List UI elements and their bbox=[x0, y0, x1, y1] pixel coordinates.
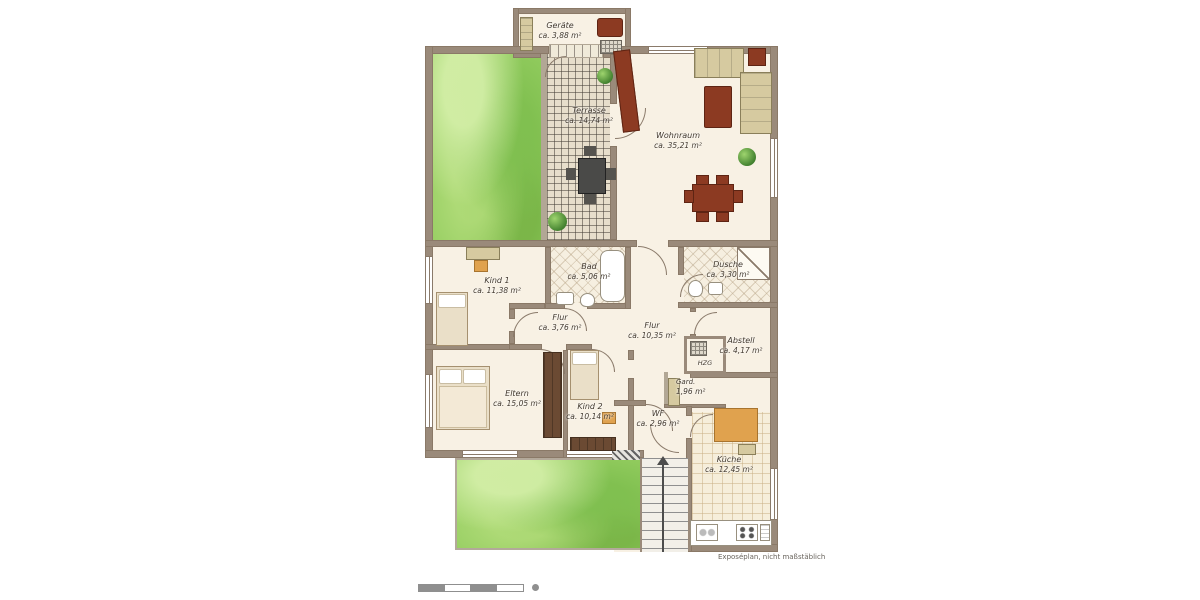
room-name: Flur bbox=[527, 313, 593, 323]
room-name: Geräte bbox=[528, 21, 592, 31]
dining-chair bbox=[716, 212, 729, 222]
terrace-chair bbox=[584, 194, 596, 204]
room-label-gard: Gard. 1,96 m² bbox=[676, 378, 720, 397]
wall bbox=[686, 406, 692, 416]
toilet bbox=[688, 280, 703, 297]
room-label-terrasse: Terrasse ca. 14,74 m² bbox=[553, 106, 625, 126]
scale-bar bbox=[418, 583, 544, 593]
window bbox=[462, 450, 518, 458]
entry-step-hatch bbox=[612, 450, 640, 460]
plant-icon bbox=[738, 148, 756, 166]
blanket bbox=[439, 386, 487, 428]
room-name: Kind 2 bbox=[557, 402, 623, 412]
terrace-table bbox=[578, 158, 606, 194]
room-name: Bad bbox=[558, 262, 620, 272]
sink-unit bbox=[696, 524, 718, 541]
pillow bbox=[463, 369, 486, 384]
room-name: Wohnraum bbox=[640, 131, 716, 141]
terrace-chair bbox=[584, 146, 596, 156]
stairs bbox=[640, 458, 688, 552]
sink bbox=[708, 282, 723, 295]
room-area: ca. 12,45 m² bbox=[695, 465, 763, 475]
terrace-chair bbox=[566, 168, 576, 180]
room-name: Abstell bbox=[706, 336, 776, 346]
room-area: 1,96 m² bbox=[676, 387, 720, 397]
room-label-wohnraum: Wohnraum ca. 35,21 m² bbox=[640, 131, 716, 151]
room-label-bad: Bad ca. 5,06 m² bbox=[558, 262, 620, 282]
room-area: ca. 4,17 m² bbox=[706, 346, 776, 356]
room-label-flur-2: Flur ca. 10,35 m² bbox=[621, 321, 683, 341]
window bbox=[425, 374, 433, 428]
room-name: Kind 1 bbox=[462, 276, 532, 286]
room-area: ca. 15,05 m² bbox=[482, 399, 552, 409]
terrace-chair bbox=[606, 168, 616, 180]
window bbox=[425, 256, 433, 304]
scale-segment bbox=[444, 584, 472, 592]
rug bbox=[704, 86, 732, 128]
wall bbox=[628, 350, 634, 360]
sink bbox=[556, 292, 574, 305]
room-area: ca. 5,06 m² bbox=[558, 272, 620, 282]
room-label-hzg: HZG bbox=[687, 359, 723, 367]
room-name: Eltern bbox=[482, 389, 552, 399]
dining-chair bbox=[696, 175, 709, 185]
room-area: ca. 3,76 m² bbox=[527, 323, 593, 333]
room-area: ca. 10,35 m² bbox=[621, 331, 683, 341]
room-label-dusche: Dusche ca. 3,30 m² bbox=[697, 260, 759, 280]
stairs-direction-arrow bbox=[657, 456, 669, 465]
room-label-abstell: Abstell ca. 4,17 m² bbox=[706, 336, 776, 356]
scale-end-marker bbox=[532, 584, 539, 591]
scale-segment bbox=[470, 584, 498, 592]
garden-top bbox=[433, 54, 541, 240]
stairs-rail bbox=[662, 462, 664, 552]
chair bbox=[474, 260, 488, 272]
window bbox=[770, 468, 778, 520]
desk bbox=[466, 247, 500, 260]
room-label-wf: WF ca. 2,96 m² bbox=[631, 409, 685, 429]
window bbox=[566, 450, 614, 458]
room-label-flur-1: Flur ca. 3,76 m² bbox=[527, 313, 593, 333]
wall bbox=[545, 247, 551, 305]
wall bbox=[690, 308, 696, 312]
floor-plan: Geräte ca. 3,88 m² Terrasse ca. 14,74 m²… bbox=[0, 0, 1200, 600]
kitchen-table bbox=[714, 408, 758, 442]
dining-chair bbox=[696, 212, 709, 222]
wall bbox=[668, 240, 778, 247]
room-name: Terrasse bbox=[553, 106, 625, 116]
room-area: ca. 14,74 m² bbox=[553, 116, 625, 126]
room-area: ca. 3,30 m² bbox=[697, 270, 759, 280]
room-area: ca. 35,21 m² bbox=[640, 141, 716, 151]
wall bbox=[625, 247, 631, 309]
room-area: ca. 11,38 m² bbox=[462, 286, 532, 296]
boiler-icon bbox=[690, 341, 707, 356]
room-label-geraete: Geräte ca. 3,88 m² bbox=[528, 21, 592, 41]
garden-bottom bbox=[455, 458, 642, 550]
plant-icon bbox=[597, 68, 613, 84]
room-area: ca. 2,96 m² bbox=[631, 419, 685, 429]
scale-segment bbox=[418, 584, 446, 592]
room-area: ca. 3,88 m² bbox=[528, 31, 592, 41]
pillow bbox=[572, 352, 597, 365]
sofa bbox=[740, 72, 772, 134]
stove bbox=[736, 524, 758, 541]
room-name: WF bbox=[631, 409, 685, 419]
wardrobe bbox=[570, 437, 616, 451]
sofa bbox=[694, 48, 744, 78]
room-name: Dusche bbox=[697, 260, 759, 270]
room-label-kind2: Kind 2 ca. 10,14 m² bbox=[557, 402, 623, 422]
footer-note: Exposéplan, nicht maßstäblich bbox=[718, 553, 825, 561]
scale-segment bbox=[496, 584, 524, 592]
room-name: Flur bbox=[621, 321, 683, 331]
side-table bbox=[748, 48, 766, 66]
plant-icon bbox=[548, 212, 567, 231]
lawnmower-icon bbox=[597, 18, 623, 37]
wall bbox=[425, 240, 637, 247]
dining-chair bbox=[716, 175, 729, 185]
dining-chair bbox=[684, 190, 694, 203]
room-name: Küche bbox=[695, 455, 763, 465]
toilet bbox=[580, 293, 595, 307]
room-label-kind1: Kind 1 ca. 11,38 m² bbox=[462, 276, 532, 296]
room-area: ca. 10,14 m² bbox=[557, 412, 623, 422]
room-name: HZG bbox=[687, 359, 723, 367]
room-label-kueche: Küche ca. 12,45 m² bbox=[695, 455, 763, 475]
wall bbox=[513, 8, 631, 14]
kitchen-bench bbox=[738, 444, 756, 455]
room-label-eltern: Eltern ca. 15,05 m² bbox=[482, 389, 552, 409]
window bbox=[770, 138, 778, 198]
room-name: Gard. bbox=[676, 378, 720, 387]
dishwasher bbox=[760, 524, 770, 541]
wall bbox=[541, 54, 547, 240]
dining-table bbox=[692, 184, 734, 212]
dining-chair bbox=[733, 190, 743, 203]
wall bbox=[610, 146, 617, 240]
wall bbox=[509, 344, 542, 350]
wall bbox=[678, 247, 684, 275]
wall bbox=[509, 309, 515, 319]
pillow bbox=[439, 369, 462, 384]
terrace-steps bbox=[549, 44, 603, 58]
